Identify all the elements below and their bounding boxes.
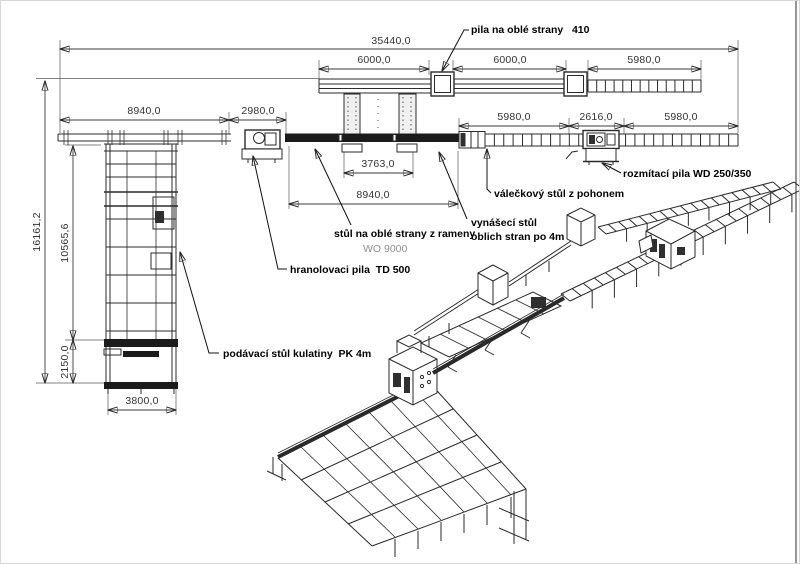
top-rail <box>319 72 587 96</box>
arm-table-columns <box>342 94 417 152</box>
cad-sheet: 35440,0 6000,0 6000,0 5980,0 8940,0 2980… <box>0 0 800 564</box>
dim-height-mid: 10565,6 <box>59 223 71 262</box>
dim-right3: 5980,0 <box>664 111 697 123</box>
label-outfeed-line2: oblich stran po 4m <box>471 231 564 243</box>
iso-beam-saw <box>389 335 437 405</box>
dim-right1: 5980,0 <box>497 111 530 123</box>
label-outfeed-line1: vynášecí stůl <box>471 217 537 229</box>
iso-log-deck <box>267 377 529 557</box>
dim-height-total: 16161,2 <box>31 212 43 251</box>
label-beam-saw: hranolovaci pila TD 500 <box>290 264 410 276</box>
cad-drawing: 35440,0 6000,0 6000,0 5980,0 8940,0 2980… <box>1 1 799 563</box>
dim-height-bottom: 2150,0 <box>59 345 71 378</box>
dim-saw-gap: 2980,0 <box>241 105 274 117</box>
operator-mark <box>566 151 578 159</box>
label-log-infeed: podávací stůl kulatiny PK 4m <box>223 348 371 360</box>
dim-top2: 6000,0 <box>493 54 526 66</box>
junction-box <box>459 132 485 149</box>
rip-saw-plan <box>566 131 619 166</box>
labels: pila na oblé strany 410 rozmítací pila W… <box>180 24 752 360</box>
label-arm-table: stůl na oblé strany z rameny <box>334 228 475 240</box>
top-outfeed-conveyor <box>588 80 701 92</box>
dim-feed-width: 3800,0 <box>125 395 158 407</box>
beam-saw-plan <box>242 130 282 163</box>
dim-feed-len: 8940,0 <box>127 105 160 117</box>
dim-total: 35440,0 <box>371 35 410 47</box>
isometric-view <box>267 208 595 557</box>
label-rip-saw: rozmítací pila WD 250/350 <box>623 168 752 180</box>
dim-right2: 2616,0 <box>579 111 612 123</box>
dim-top3: 5980,0 <box>627 54 660 66</box>
label-roller-table: válečkový stůl z pohonem <box>494 188 624 200</box>
powered-rail <box>285 134 459 143</box>
label-arm-table-model: WO 9000 <box>363 243 408 255</box>
log-feed-table-plan <box>104 144 178 394</box>
main-line <box>58 130 485 163</box>
dim-table-inner: 3763,0 <box>361 158 394 170</box>
label-round-saw: pila na oblé strany 410 <box>471 24 590 36</box>
dim-top1: 6000,0 <box>357 54 390 66</box>
infeed-rail-ticks <box>64 130 226 145</box>
dim-table-len: 8940,0 <box>356 189 389 201</box>
